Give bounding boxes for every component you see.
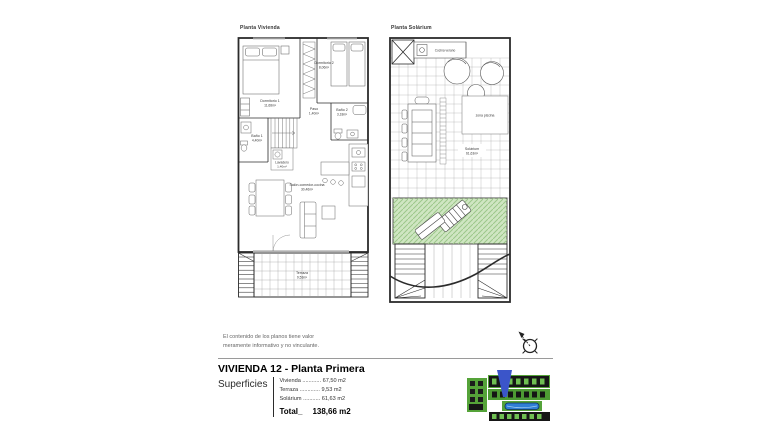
superficies-total-row: Total_138,66 m2 xyxy=(279,406,350,419)
room-label-dormitorio1-area: 11,68m² xyxy=(264,104,277,108)
pergola-slats xyxy=(440,98,446,164)
skylight-box xyxy=(392,40,414,64)
superficies-label: Superficies xyxy=(218,377,267,417)
row-dots: ............ xyxy=(301,378,323,384)
wardrobe-hatch xyxy=(303,42,315,98)
north-compass-icon xyxy=(517,329,543,359)
row-label: Terraza xyxy=(279,387,298,393)
room-label-dormitorio1-name: Dormitorio 1 xyxy=(260,99,280,103)
stairs-left xyxy=(239,253,255,297)
key-map-middle-row xyxy=(488,389,550,400)
row-value: 67,50 m2 xyxy=(323,378,346,384)
superficies-row-solarium: Solárium ........... 61,63 m2 xyxy=(279,395,350,404)
vivienda-floorplan: Dormitorio 1 11,68m² Dormitorio 2 8,06m²… xyxy=(237,34,370,302)
label-solarium-area: 61,63m² xyxy=(466,152,479,156)
room-label-bano2-name: Baño 2 xyxy=(336,108,347,112)
room-label-terraza-name: Terraza xyxy=(296,271,308,275)
superficies-row-terraza: Terraza ............. 9,53 m2 xyxy=(279,386,350,395)
superficies-block: Superficies Vivienda ............ 67,50 … xyxy=(218,377,351,417)
room-label-dormitorio2-area: 8,06m² xyxy=(319,66,330,70)
room-label-lavadero-area: 1,40m² xyxy=(277,165,287,169)
row-dots: ............. xyxy=(298,387,321,393)
key-map-pool xyxy=(502,401,542,411)
room-label-paso-name: Paso xyxy=(310,107,318,111)
solarium-floorplan: Cocina verano xyxy=(388,34,512,306)
label-zona-piscina: zona piscina xyxy=(476,114,495,118)
row-value: 61,63 m2 xyxy=(322,396,345,402)
disclaimer-line1: El contenido de los planos tiene valor xyxy=(223,333,319,342)
room-label-bano1-name: Baño 1 xyxy=(251,134,262,138)
key-map-bottom-row xyxy=(489,412,550,421)
total-value: 138,66 m2 xyxy=(312,407,350,416)
vivienda-plan-title: Planta Vivienda xyxy=(240,25,280,31)
row-value: 9,53 m2 xyxy=(321,387,341,393)
room-label-salon-name: Salón-comedor-cocina xyxy=(289,183,324,187)
sheet-title: VIVIENDA 12 - Planta Primera xyxy=(218,363,365,375)
room-label-salon-area: 30,46m² xyxy=(301,188,314,192)
superficies-list: Vivienda ............ 67,50 m2 Terraza .… xyxy=(279,377,350,417)
row-label: Solárium xyxy=(279,396,301,402)
pool-zone-block: zona piscina xyxy=(462,96,508,134)
superficies-row-vivienda: Vivienda ............ 67,50 m2 xyxy=(279,377,350,386)
total-label: Total_ xyxy=(279,407,302,416)
site-key-map xyxy=(466,370,554,422)
divider-line xyxy=(218,358,553,359)
room-label-bano1-area: 4,40m² xyxy=(252,139,263,143)
floorplan-sheet: Planta Vivienda xyxy=(0,0,770,433)
key-map-top-row xyxy=(488,375,550,388)
key-map-left-block xyxy=(467,378,487,412)
room-label-paso-area: 1,40m² xyxy=(309,112,320,116)
label-solarium-name: Solárium xyxy=(465,147,479,151)
room-label-bano2-area: 3,18m² xyxy=(337,113,348,117)
disclaimer-line2: meramente informativo y no vinculante. xyxy=(223,342,319,351)
disclaimer-text: El contenido de los planos tiene valor m… xyxy=(223,333,319,351)
row-dots: ........... xyxy=(302,396,322,402)
solarium-plan-title: Planta Solárium xyxy=(391,25,432,31)
superficies-divider-bar xyxy=(273,377,274,417)
room-label-terraza-area: 9,53m² xyxy=(297,276,308,280)
grass-area xyxy=(393,198,507,244)
room-label-dormitorio2-name: Dormitorio 2 xyxy=(314,61,334,65)
stairs-right xyxy=(351,253,368,297)
label-cocina-verano: Cocina verano xyxy=(435,49,456,53)
row-label: Vivienda xyxy=(279,378,300,384)
